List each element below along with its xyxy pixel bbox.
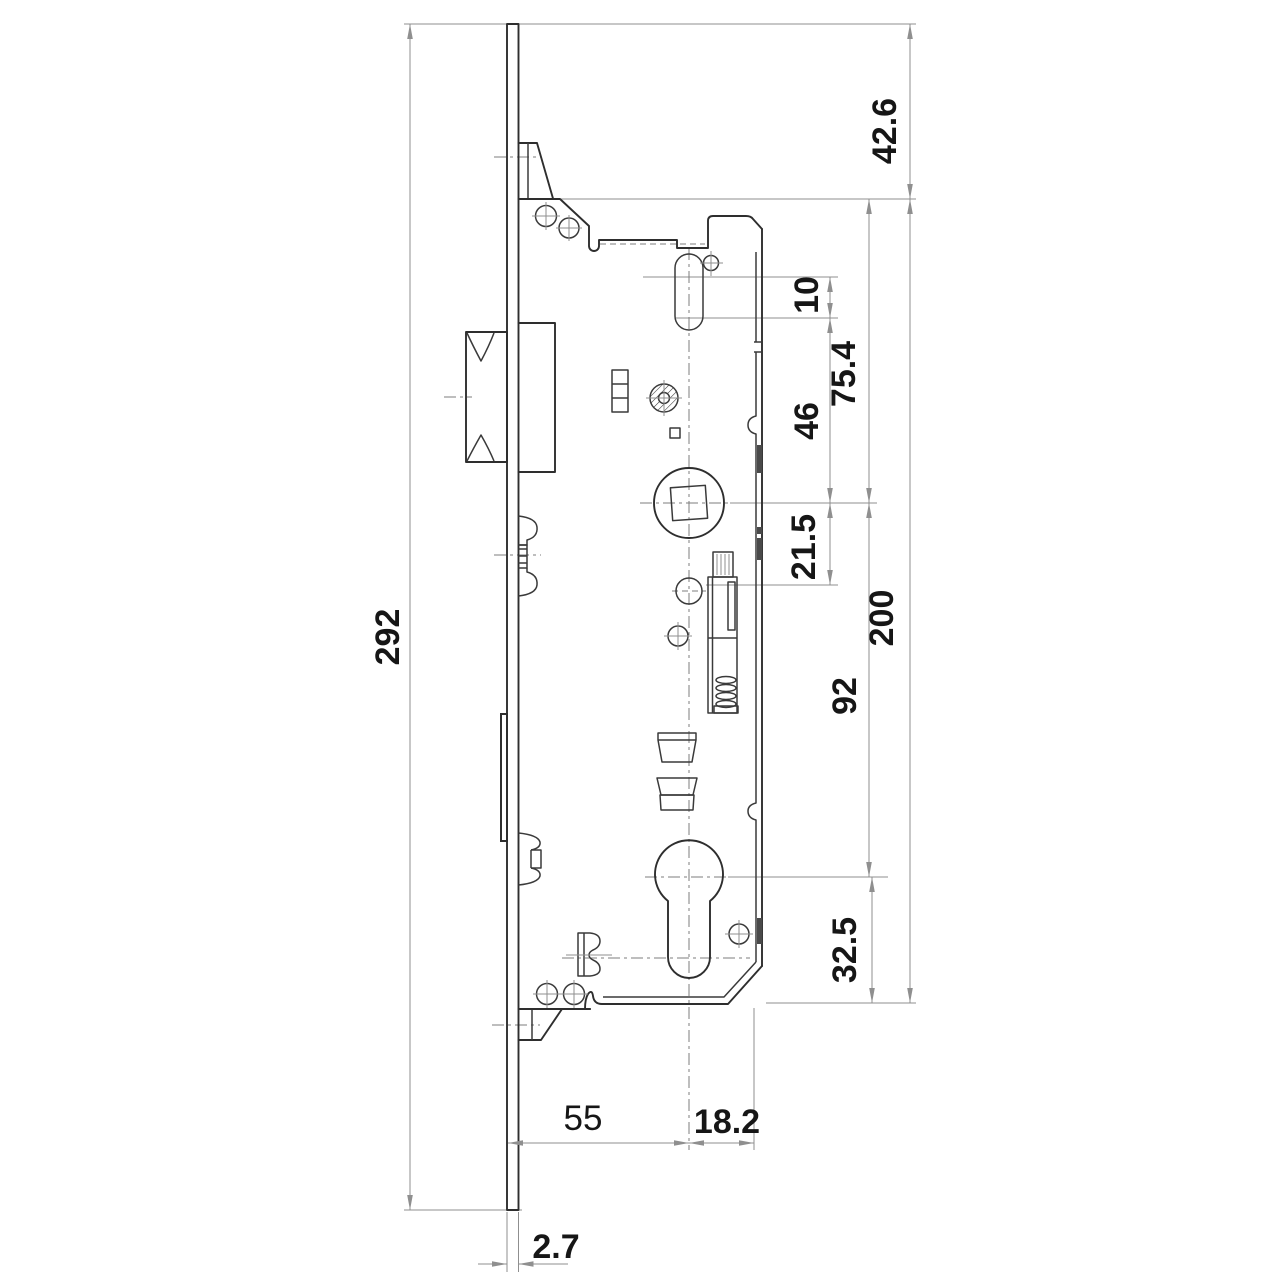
spring-slider bbox=[708, 552, 738, 713]
technical-drawing-canvas: 292 42.6 200 75.4 92 32.5 10 46 bbox=[0, 0, 1280, 1280]
upper-keeper bbox=[519, 516, 538, 596]
extension-lines bbox=[404, 24, 916, 1272]
bottom-screw-holes bbox=[533, 980, 588, 1008]
latch-bolt bbox=[466, 323, 555, 472]
bottom-bracket bbox=[566, 933, 612, 976]
faceplate bbox=[507, 24, 519, 1210]
dim-label-backset: 55 bbox=[564, 1099, 603, 1138]
dim-label-spindle-to-follower: 21.5 bbox=[785, 514, 823, 580]
cylinder-screw-hole bbox=[725, 920, 753, 948]
dim-label-faceplate-thickness: 2.7 bbox=[532, 1228, 579, 1266]
dim-cylinder-to-edge: 18.2 bbox=[689, 1103, 760, 1146]
lower-keeper bbox=[519, 833, 542, 885]
dim-label-cylinder-to-edge: 18.2 bbox=[694, 1103, 760, 1141]
lock-case-outline bbox=[519, 199, 763, 1009]
dim-label-top-offset: 42.6 bbox=[866, 98, 904, 164]
top-screw-holes bbox=[532, 202, 582, 241]
dim-label-slot-to-spindle: 46 bbox=[788, 402, 826, 440]
cam-block-upper bbox=[658, 733, 696, 762]
center-lines bbox=[444, 157, 750, 1150]
dim-faceplate-thickness: 2.7 bbox=[478, 1228, 580, 1267]
square-port bbox=[670, 428, 680, 438]
dim-backset: 55 bbox=[508, 1099, 689, 1146]
dim-overall-height: 292 bbox=[369, 24, 413, 1210]
cam-block-lower bbox=[657, 778, 697, 810]
mortise-lock-technical-drawing: 292 42.6 200 75.4 92 32.5 10 46 bbox=[0, 0, 1280, 1280]
deadbolt-edge bbox=[501, 714, 507, 841]
dim-spindle-positions: 75.4 92 bbox=[825, 199, 872, 877]
guide-block bbox=[612, 370, 628, 412]
pivot-hole bbox=[664, 622, 692, 650]
dim-label-overall-height: 292 bbox=[369, 609, 407, 666]
top-mounting-tab bbox=[519, 143, 554, 199]
dim-label-spindle-to-cylinder: 92 bbox=[826, 677, 864, 715]
dim-label-slot-travel: 10 bbox=[788, 276, 826, 314]
dim-label-cylinder-to-bottom: 32.5 bbox=[826, 917, 864, 983]
bearing-boss bbox=[646, 380, 682, 416]
dim-cylinder-to-bottom: 32.5 bbox=[826, 877, 875, 1003]
dim-label-case-top-to-spindle: 75.4 bbox=[825, 341, 863, 407]
dim-slot-chain: 10 46 21.5 bbox=[785, 276, 833, 585]
